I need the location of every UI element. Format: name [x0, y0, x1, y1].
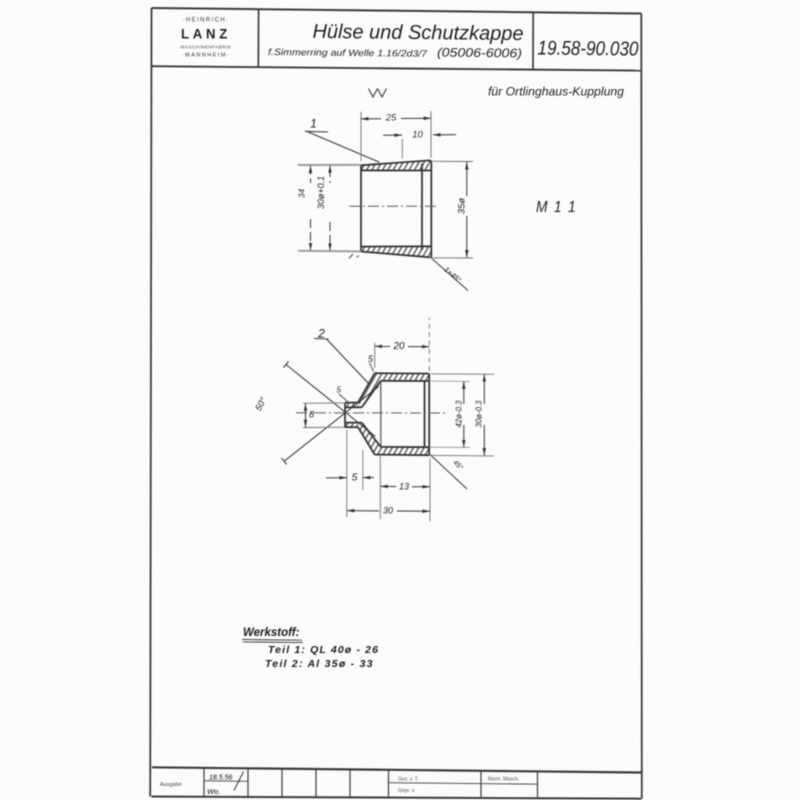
svg-text:·MASCHINENFABRIK·: ·MASCHINENFABRIK·: [179, 45, 234, 50]
svg-text:30ø-0.3: 30ø-0.3: [475, 400, 484, 428]
svg-text:·HEINRICH·: ·HEINRICH·: [183, 18, 230, 24]
svg-text:Hülse und Schutzkappe: Hülse und Schutzkappe: [312, 21, 523, 45]
svg-text:25: 25: [385, 113, 397, 124]
svg-text:Gepr. v.: Gepr. v.: [398, 788, 415, 794]
svg-text:Werkstoff:: Werkstoff:: [243, 627, 300, 639]
svg-text:30ø+0.1: 30ø+0.1: [316, 176, 326, 209]
svg-text:Teil 2: Al 35ø - 33: Teil 2: Al 35ø - 33: [265, 658, 374, 670]
svg-text:18.5.56: 18.5.56: [209, 775, 232, 782]
svg-text:Teil 1: QL 40ø - 26: Teil 1: QL 40ø - 26: [268, 644, 379, 656]
svg-text:35ø: 35ø: [457, 198, 468, 215]
svg-text:42ø-0.3: 42ø-0.3: [455, 400, 464, 428]
svg-text:LANZ: LANZ: [181, 26, 231, 42]
svg-text:Wo.: Wo.: [207, 787, 220, 796]
svg-text:20: 20: [392, 341, 405, 352]
svg-text:19.58-90.030: 19.58-90.030: [537, 37, 638, 60]
svg-text:Gez. v. T.: Gez. v. T.: [398, 777, 419, 783]
svg-text:30: 30: [383, 506, 393, 516]
svg-text:1: 1: [310, 117, 317, 131]
svg-text:13: 13: [399, 482, 409, 492]
svg-text:f.Simmerring auf Welle 1.16/2d: f.Simmerring auf Welle 1.16/2d3/7: [268, 47, 428, 59]
svg-text:10: 10: [412, 130, 423, 141]
svg-text:8: 8: [309, 410, 315, 421]
svg-text:M 1 1: M 1 1: [536, 199, 577, 216]
svg-text:5: 5: [337, 386, 342, 395]
svg-text:·MANNHEIM·: ·MANNHEIM·: [182, 53, 231, 59]
svg-text:Norm. Masch.: Norm. Masch.: [488, 777, 519, 783]
svg-text:34: 34: [297, 189, 307, 199]
svg-text:(05006-6006): (05006-6006): [437, 46, 522, 61]
svg-text:5: 5: [352, 472, 358, 484]
svg-text:für Ortlinghaus-Kupplung: für Ortlinghaus-Kupplung: [488, 85, 624, 99]
svg-text:Ausgabe: Ausgabe: [160, 782, 182, 788]
